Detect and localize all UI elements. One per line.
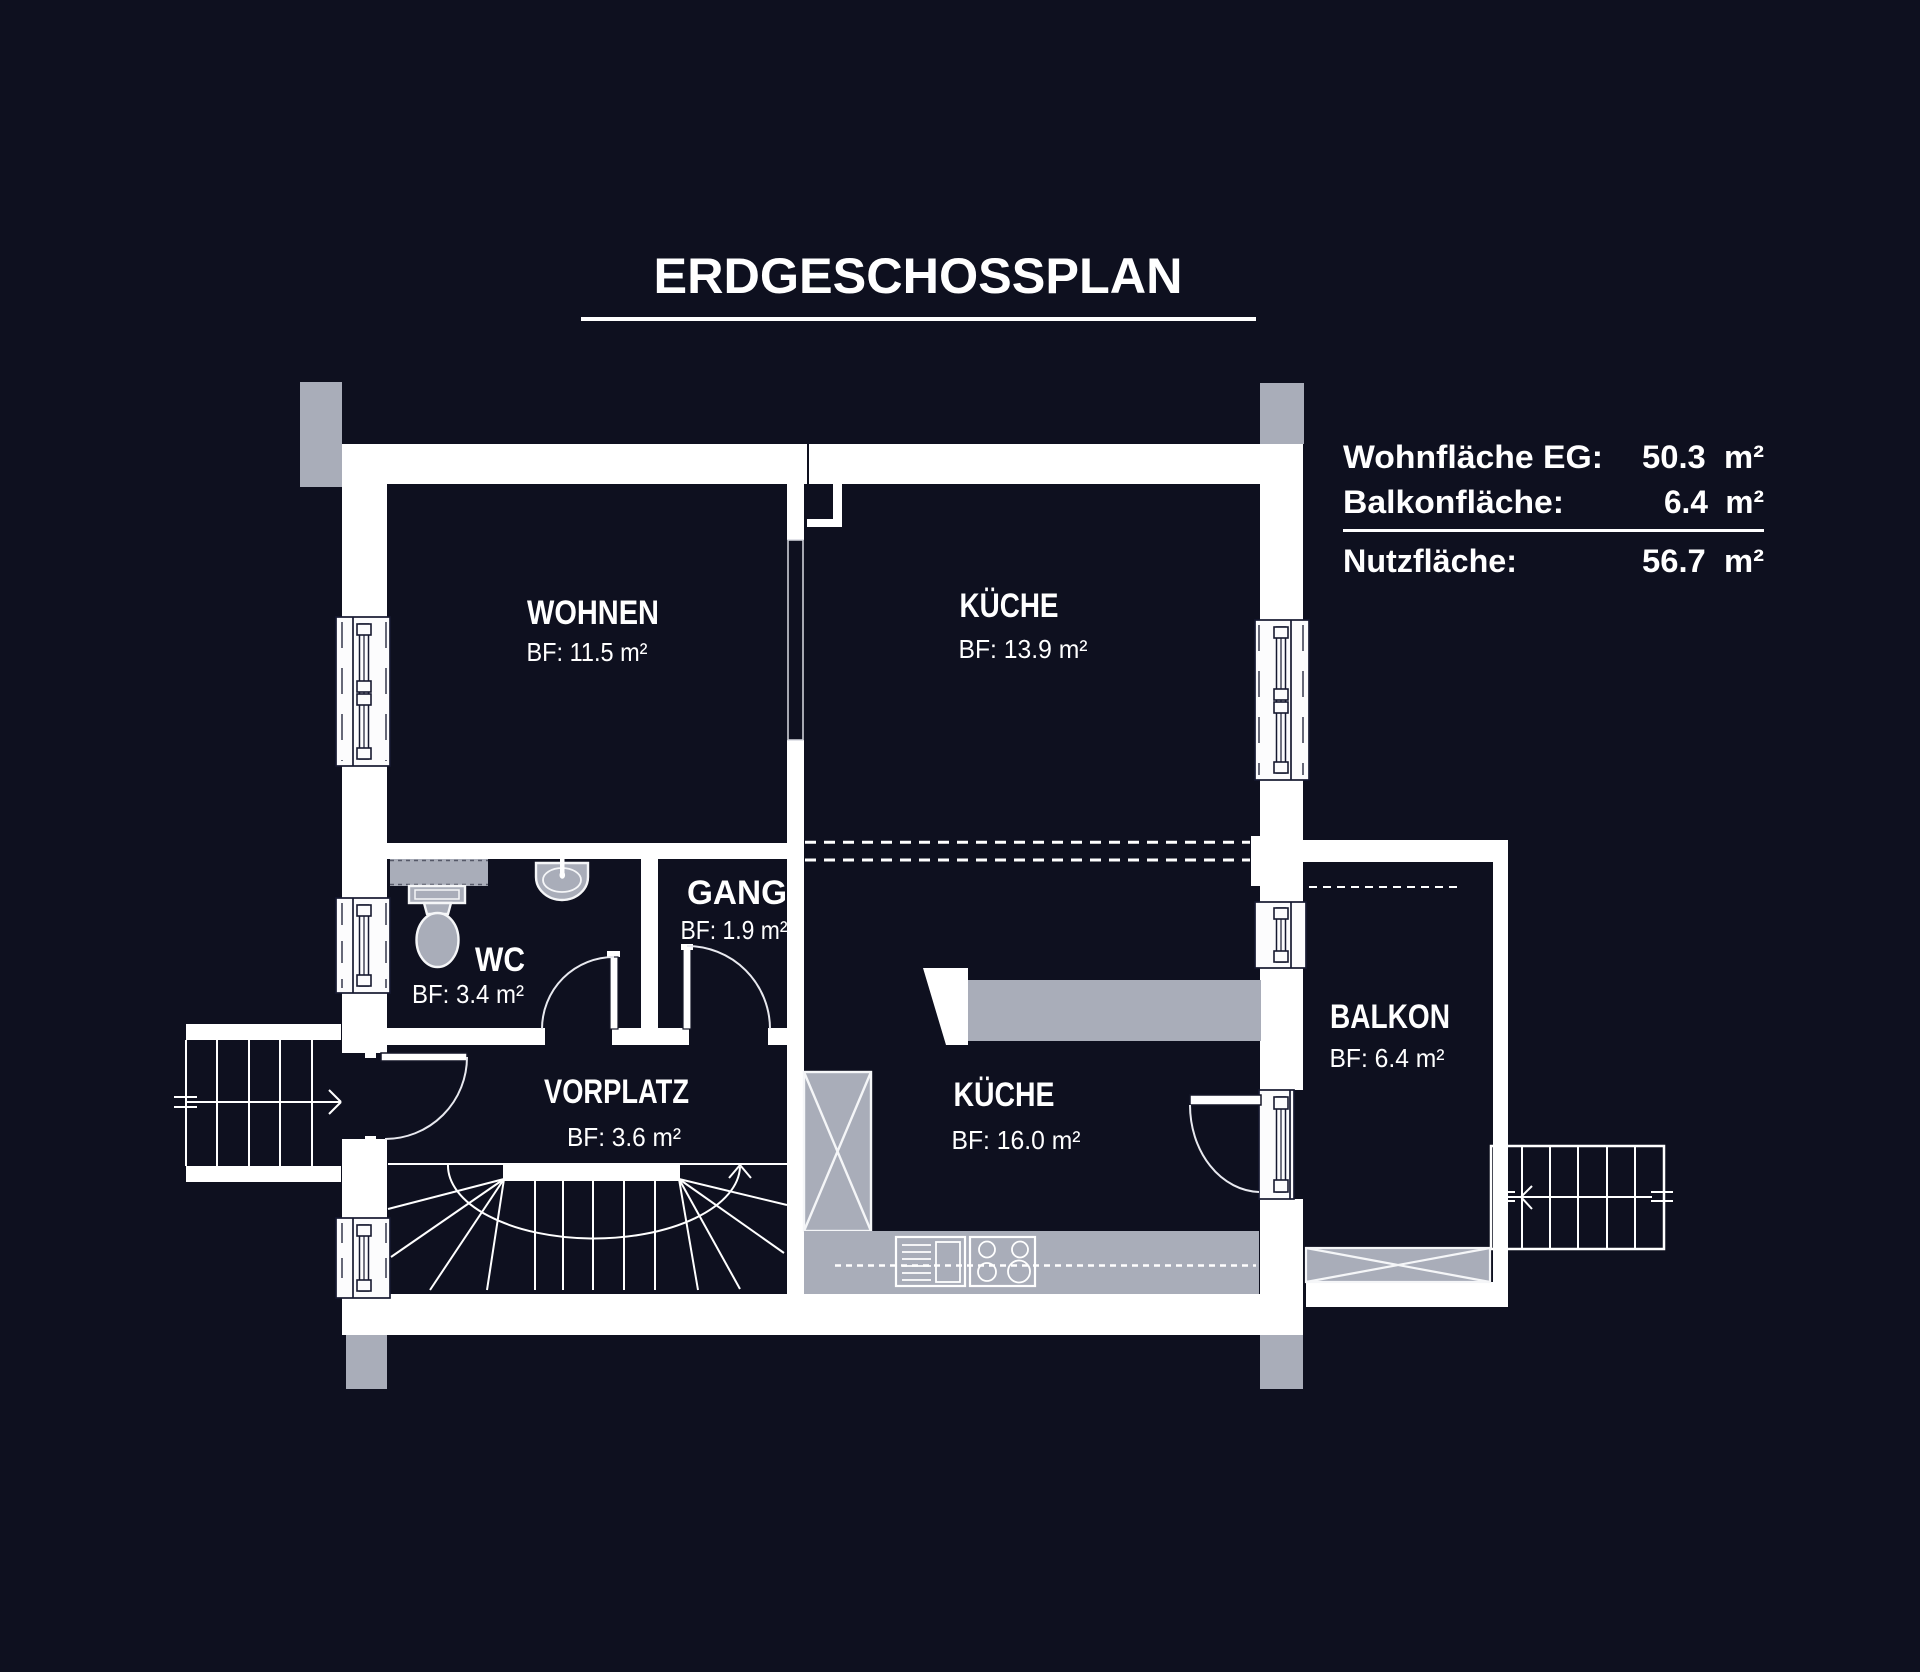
svg-text:BF: 3.4 m²: BF: 3.4 m² xyxy=(412,979,524,1009)
svg-text:KÜCHE: KÜCHE xyxy=(954,1076,1055,1114)
svg-text:WOHNEN: WOHNEN xyxy=(527,594,659,632)
svg-text:BALKON: BALKON xyxy=(1330,998,1450,1036)
svg-text:ERDGESCHOSSPLAN: ERDGESCHOSSPLAN xyxy=(654,248,1183,304)
svg-text:56.7 m²: 56.7 m² xyxy=(1642,543,1764,579)
svg-text:GANG: GANG xyxy=(687,874,787,912)
svg-text:BF: 11.5 m²: BF: 11.5 m² xyxy=(527,637,648,667)
svg-text:6.4 m²: 6.4 m² xyxy=(1664,484,1764,520)
svg-text:BF: 1.9 m²: BF: 1.9 m² xyxy=(681,915,788,945)
svg-text:Wohnfläche EG:: Wohnfläche EG: xyxy=(1343,439,1603,475)
svg-text:WC: WC xyxy=(475,941,525,979)
svg-text:VORPLATZ: VORPLATZ xyxy=(544,1073,689,1111)
svg-text:Balkonfläche:: Balkonfläche: xyxy=(1343,484,1564,520)
svg-text:BF: 3.6 m²: BF: 3.6 m² xyxy=(567,1122,681,1152)
svg-text:Nutzfläche:: Nutzfläche: xyxy=(1343,543,1517,579)
svg-text:BF: 16.0 m²: BF: 16.0 m² xyxy=(952,1125,1081,1155)
svg-text:BF: 6.4 m²: BF: 6.4 m² xyxy=(1330,1043,1445,1073)
svg-text:BF: 13.9 m²: BF: 13.9 m² xyxy=(959,634,1088,664)
svg-text:50.3 m²: 50.3 m² xyxy=(1642,439,1764,475)
svg-text:KÜCHE: KÜCHE xyxy=(960,587,1059,625)
